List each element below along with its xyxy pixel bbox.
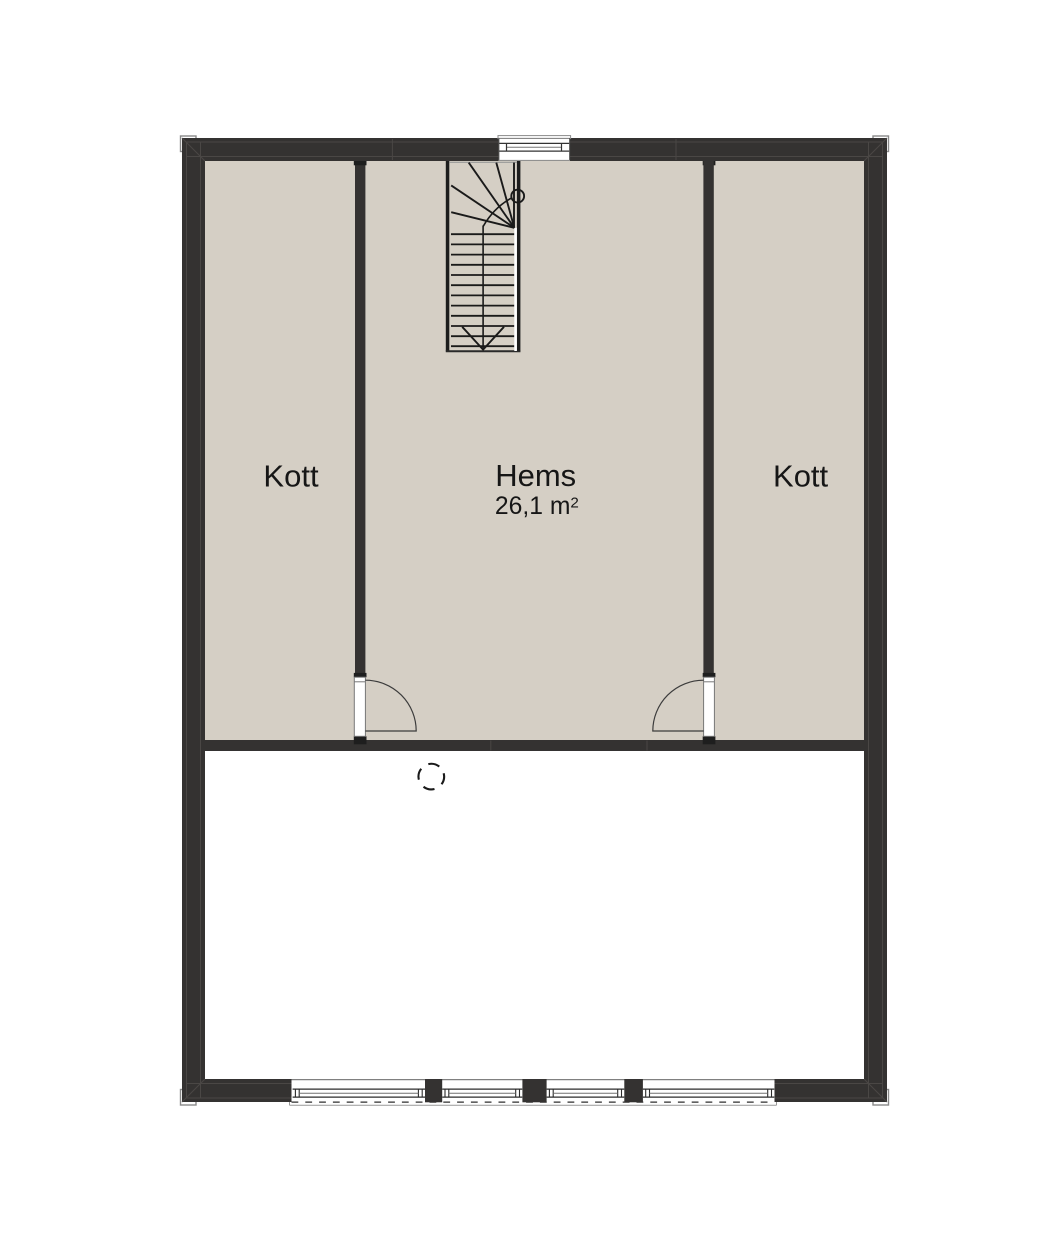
svg-text:Hems: Hems bbox=[495, 458, 576, 493]
svg-text:Kott: Kott bbox=[773, 458, 829, 493]
svg-text:Kott: Kott bbox=[263, 458, 319, 493]
svg-text:26,1 m2: 26,1 m2 bbox=[495, 493, 579, 520]
